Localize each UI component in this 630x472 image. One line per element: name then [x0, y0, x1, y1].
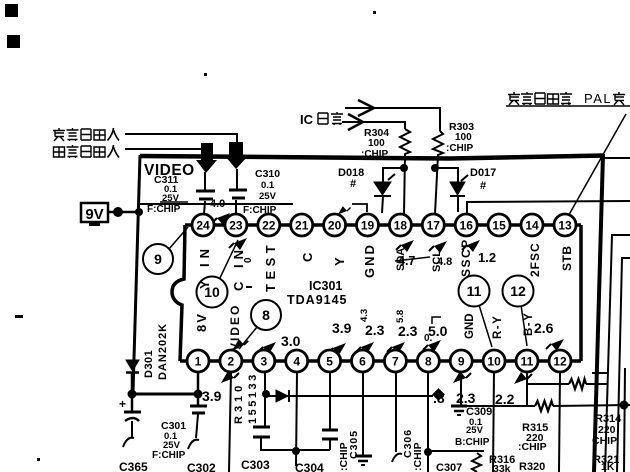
svg-text:13: 13 [558, 219, 572, 233]
svg-text:14: 14 [525, 219, 539, 233]
svg-text:4.0: 4.0 [210, 198, 225, 210]
svg-text:4.3: 4.3 [359, 309, 370, 322]
svg-text:9V: 9V [85, 206, 103, 223]
svg-text:2.6: 2.6 [534, 320, 554, 336]
svg-text:IC: IC [300, 112, 314, 127]
svg-text:6: 6 [359, 355, 366, 369]
svg-text:SDA: SDA [395, 248, 407, 271]
svg-text:B:CHIP: B:CHIP [455, 437, 490, 448]
svg-text:D301: D301 [143, 350, 155, 378]
svg-text:Y: Y [332, 257, 347, 266]
svg-text:+: + [119, 397, 126, 411]
svg-text:R310: R310 [233, 382, 245, 424]
svg-text:1: 1 [195, 355, 202, 369]
svg-text:0.1: 0.1 [261, 180, 275, 191]
svg-text:.8: .8 [433, 390, 445, 406]
svg-text:18: 18 [394, 219, 408, 233]
svg-text:2.3: 2.3 [365, 322, 385, 338]
svg-text:2FSC: 2FSC [528, 242, 542, 277]
svg-text:3: 3 [260, 355, 267, 369]
svg-text:12: 12 [553, 355, 567, 369]
svg-text:23: 23 [229, 219, 243, 233]
svg-text:17: 17 [427, 219, 441, 233]
svg-text:TEST: TEST [263, 241, 278, 292]
svg-text:C IN: C IN [231, 245, 246, 291]
svg-text:F:CHIP: F:CHIP [147, 204, 181, 215]
svg-text:3.9: 3.9 [332, 320, 352, 336]
svg-text:3.9: 3.9 [202, 388, 222, 404]
svg-text:8: 8 [425, 355, 432, 369]
svg-text:20: 20 [328, 219, 342, 233]
svg-text:100: 100 [455, 132, 472, 143]
svg-text:GND: GND [464, 313, 476, 339]
svg-text:25V: 25V [466, 425, 484, 436]
svg-text:C304: C304 [295, 461, 324, 472]
svg-text:25V: 25V [259, 191, 277, 202]
svg-text:GND: GND [362, 243, 377, 278]
svg-text:VIDEO: VIDEO [228, 304, 242, 351]
svg-text:F:CHIP: F:CHIP [152, 450, 186, 461]
svg-text:#: # [480, 180, 486, 192]
svg-text:11: 11 [521, 355, 534, 369]
svg-text::CHIP: :CHIP [361, 149, 389, 160]
svg-text:DAN202K: DAN202K [157, 323, 169, 380]
svg-text:15: 15 [492, 219, 506, 233]
svg-text:C: C [300, 252, 315, 262]
svg-text:C302: C302 [187, 461, 216, 472]
svg-text:SSCP: SSCP [459, 238, 473, 277]
svg-text:STB: STB [560, 246, 574, 272]
svg-text::CHIP: :CHIP [446, 143, 474, 154]
svg-text:CHIP: CHIP [592, 435, 617, 447]
svg-text:16: 16 [460, 219, 474, 233]
svg-text:B-Y: B-Y [523, 312, 535, 336]
svg-text:10: 10 [487, 355, 501, 369]
svg-text:TDA9145: TDA9145 [287, 293, 348, 307]
svg-text:100: 100 [368, 138, 385, 149]
svg-text:5.8: 5.8 [395, 310, 406, 323]
svg-text:IC301: IC301 [309, 279, 342, 293]
svg-text:11: 11 [467, 283, 482, 299]
svg-text:C310: C310 [255, 168, 280, 180]
svg-text:D017: D017 [470, 167, 496, 179]
svg-text:33k: 33k [493, 463, 511, 472]
svg-text:24: 24 [196, 219, 210, 233]
svg-text:9: 9 [154, 251, 162, 267]
svg-text:R320: R320 [519, 461, 545, 472]
svg-text:2.2: 2.2 [495, 391, 515, 407]
svg-text:C305: C305 [348, 430, 360, 459]
svg-text:155133: 155133 [247, 372, 259, 424]
svg-text:1K: 1K [601, 461, 615, 472]
svg-text:12: 12 [510, 283, 526, 299]
svg-text:5: 5 [326, 355, 333, 369]
svg-text:Y IN: Y IN [197, 244, 212, 289]
svg-text:,: , [567, 91, 571, 106]
svg-text:0: 0 [243, 257, 254, 263]
svg-text:C365: C365 [119, 460, 148, 472]
svg-text:C307: C307 [436, 462, 462, 472]
svg-text:21: 21 [295, 219, 309, 233]
svg-text:8: 8 [262, 307, 270, 323]
svg-text:2.3: 2.3 [456, 390, 476, 406]
svg-text:C303: C303 [241, 458, 270, 472]
svg-text:2.3: 2.3 [398, 323, 418, 339]
svg-text::CHIP: :CHIP [412, 442, 424, 471]
svg-text:PAL: PAL [584, 91, 612, 106]
svg-text:R-Y: R-Y [492, 315, 504, 339]
svg-text:19: 19 [361, 219, 375, 233]
svg-text::CHIP: :CHIP [518, 441, 547, 453]
svg-text:7: 7 [392, 355, 399, 369]
svg-text:3.0: 3.0 [281, 333, 301, 349]
svg-text:F:CHIP: F:CHIP [243, 205, 277, 216]
svg-text:2: 2 [228, 355, 235, 369]
svg-text:8V: 8V [194, 312, 209, 332]
svg-text:0.: 0. [424, 333, 433, 344]
svg-text:9: 9 [458, 355, 465, 369]
svg-text:SCL: SCL [431, 250, 443, 272]
svg-text:22: 22 [262, 219, 276, 233]
svg-text:#: # [350, 178, 356, 190]
svg-text:25V: 25V [162, 193, 180, 204]
svg-text:4: 4 [293, 355, 300, 369]
svg-text:1.2: 1.2 [478, 250, 496, 265]
